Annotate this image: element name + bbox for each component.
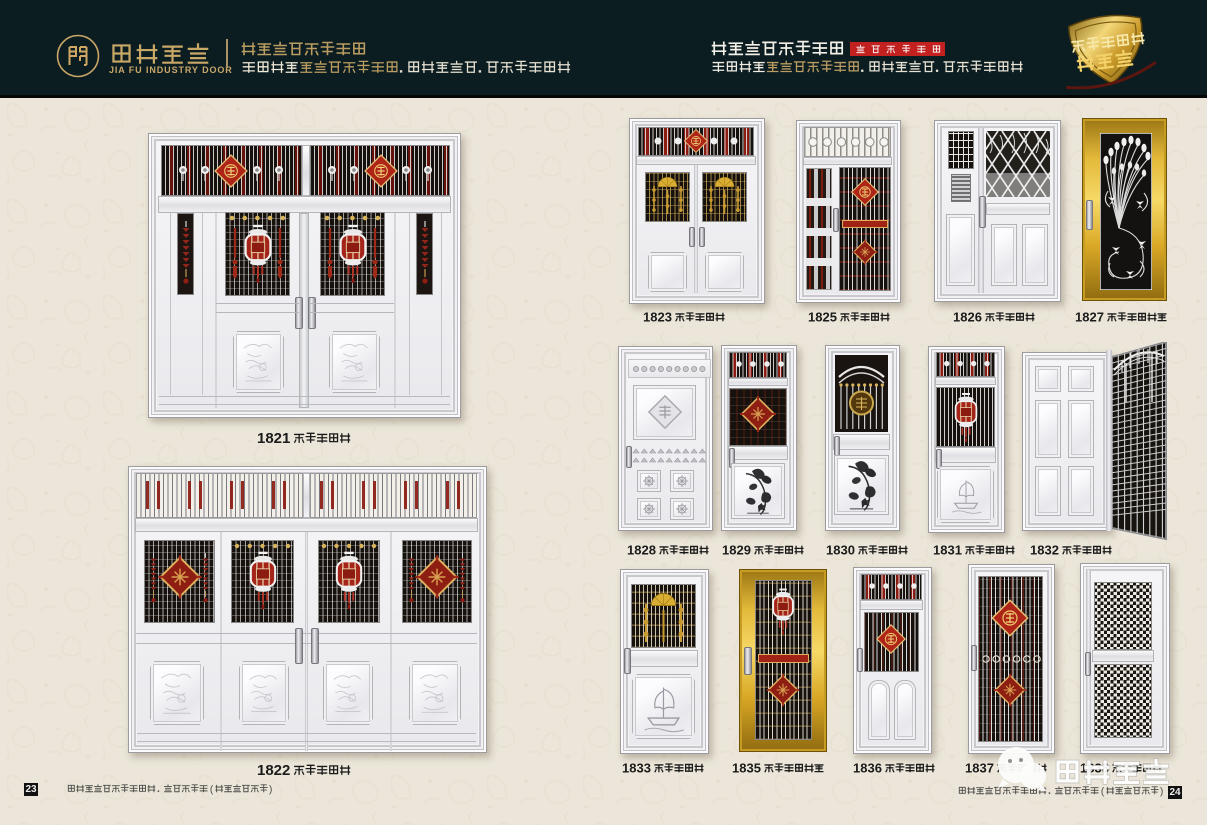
- svg-text:(: (: [1101, 787, 1105, 798]
- svg-text:1826: 1826: [953, 311, 982, 324]
- svg-text:1830: 1830: [826, 544, 855, 557]
- svg-text:1821: 1821: [257, 431, 290, 447]
- svg-text:1836: 1836: [853, 762, 882, 775]
- svg-text:1829: 1829: [722, 544, 751, 557]
- svg-text:1822: 1822: [257, 763, 290, 779]
- svg-text:(: (: [210, 785, 214, 796]
- svg-text:1825: 1825: [808, 311, 837, 324]
- svg-text:1827: 1827: [1075, 311, 1104, 324]
- svg-text:1823: 1823: [643, 311, 672, 324]
- svg-text:1835: 1835: [732, 762, 761, 775]
- svg-text:1832: 1832: [1030, 544, 1059, 557]
- svg-text:): ): [1160, 787, 1163, 798]
- svg-text:1828: 1828: [627, 544, 656, 557]
- svg-text:1833: 1833: [622, 762, 651, 775]
- svg-text:): ): [269, 785, 272, 796]
- svg-text:1831: 1831: [933, 544, 962, 557]
- svg-text:1837: 1837: [965, 762, 994, 775]
